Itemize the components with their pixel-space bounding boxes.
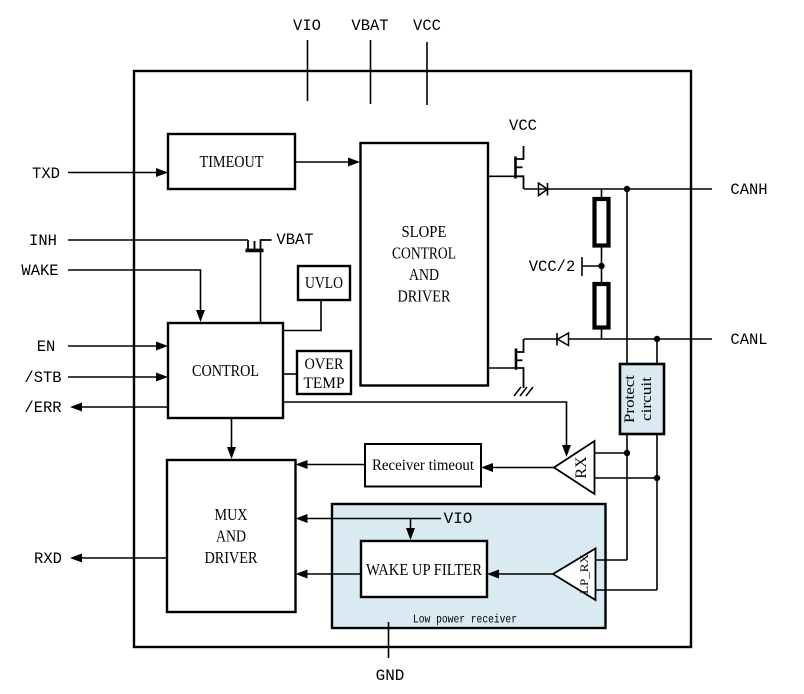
svg-text:Receiver timeout: Receiver timeout: [372, 457, 475, 474]
svg-text:GND: GND: [376, 667, 405, 685]
svg-text:OVER: OVER: [305, 356, 344, 373]
svg-text:MUX: MUX: [215, 505, 248, 524]
svg-text:CONTROL: CONTROL: [192, 361, 259, 380]
svg-text:SLOPE: SLOPE: [402, 222, 447, 241]
svg-text:DRIVER: DRIVER: [398, 287, 452, 306]
svg-text:RX: RX: [573, 456, 590, 479]
svg-text:/STB: /STB: [24, 369, 61, 387]
svg-text:CANL: CANL: [730, 331, 767, 349]
svg-text:TEMP: TEMP: [304, 375, 345, 392]
svg-text:VCC: VCC: [509, 117, 537, 135]
svg-text:/ERR: /ERR: [24, 399, 61, 417]
svg-text:RXD: RXD: [34, 550, 62, 568]
svg-text:circuit: circuit: [639, 376, 655, 421]
svg-text:AND: AND: [216, 527, 246, 546]
svg-text:VIO: VIO: [444, 510, 473, 528]
svg-text:WAKE UP FILTER: WAKE UP FILTER: [366, 560, 483, 579]
svg-text:VBAT: VBAT: [351, 17, 388, 35]
svg-text:TIMEOUT: TIMEOUT: [200, 152, 265, 171]
svg-text:VCC/2: VCC/2: [529, 258, 576, 276]
svg-text:LP_RX: LP_RX: [577, 554, 591, 594]
svg-text:CONTROL: CONTROL: [392, 244, 456, 263]
svg-text:EN: EN: [37, 338, 56, 356]
svg-text:WAKE: WAKE: [21, 262, 58, 280]
svg-text:INH: INH: [29, 232, 57, 250]
svg-text:Protect: Protect: [622, 374, 638, 423]
svg-text:CANH: CANH: [730, 181, 767, 199]
svg-text:VBAT: VBAT: [276, 231, 313, 249]
svg-text:AND: AND: [409, 265, 439, 284]
svg-text:VIO: VIO: [293, 17, 321, 35]
svg-text:Low power receiver: Low power receiver: [413, 614, 517, 627]
svg-text:UVLO: UVLO: [305, 273, 343, 292]
svg-text:VCC: VCC: [413, 17, 441, 35]
svg-text:TXD: TXD: [32, 165, 60, 183]
svg-text:DRIVER: DRIVER: [205, 548, 259, 567]
